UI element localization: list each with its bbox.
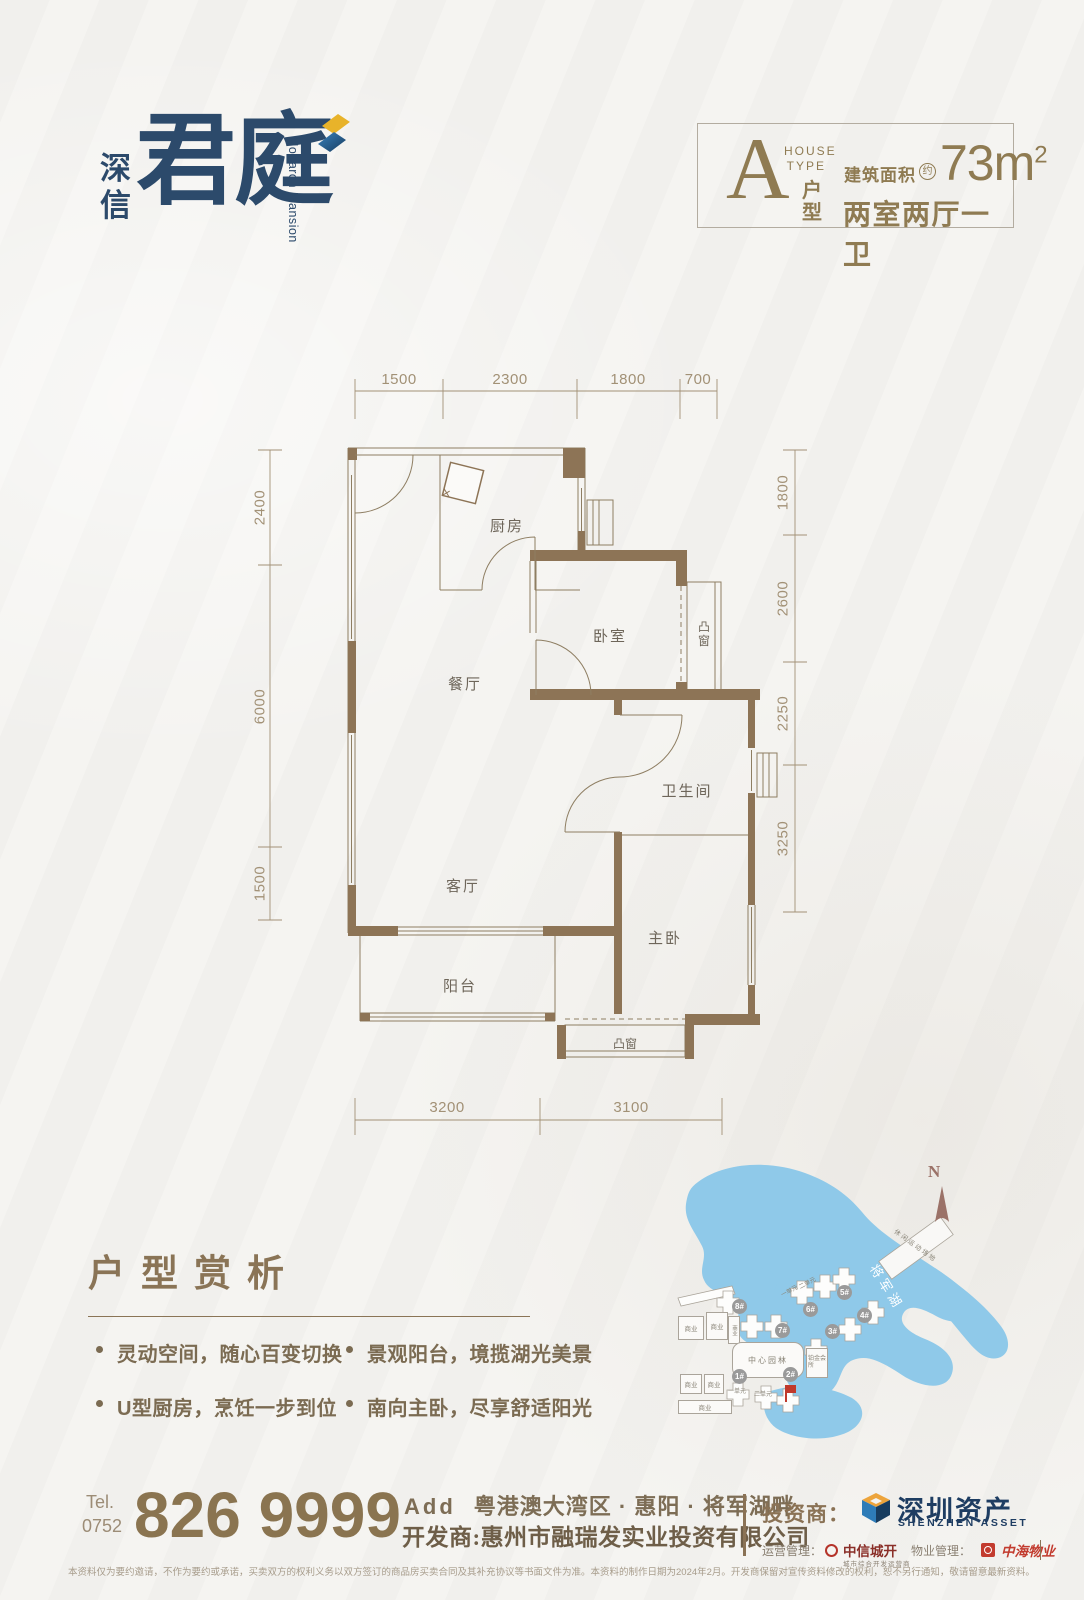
address-row: Add粤港澳大湾区 · 惠阳 · 将军湖畔	[404, 1489, 795, 1521]
room-label-bedroom: 卧室	[565, 625, 655, 646]
bullet-dot-icon	[96, 1400, 103, 1407]
house-type-cn: 户型	[802, 180, 826, 224]
logo-brand-name: 君庭	[136, 112, 332, 212]
bullet-item: 灵动空间，随心百变切换	[96, 1338, 346, 1367]
dim-top-2: 2300	[478, 371, 542, 388]
building-badge-1: 1#	[732, 1369, 747, 1384]
house-type-en-line2: TYPE	[784, 159, 826, 174]
bullet-dot-icon	[346, 1346, 353, 1353]
commercial-block: 商业	[680, 1374, 702, 1394]
dim-right-1: 1800	[775, 461, 792, 525]
room-label-dining: 餐厅	[420, 673, 510, 694]
kitchen-sink-icon	[442, 462, 483, 503]
bullet-dot-icon	[346, 1400, 353, 1407]
house-type-letter: A	[726, 126, 790, 214]
bay-window-dashed-lines	[565, 586, 685, 1019]
entry-door-arc	[355, 455, 413, 513]
bathroom-door-arc	[620, 715, 682, 777]
dim-right-2: 2600	[775, 567, 792, 631]
building-badge-2: 2#	[783, 1367, 798, 1382]
room-label-bay-window-bottom: 凸窗	[580, 1035, 670, 1052]
address-label: Add	[404, 1494, 456, 1519]
logo-diamond-icon	[312, 110, 354, 173]
tel-label: Tel.	[86, 1492, 114, 1513]
dim-right-3: 2250	[775, 682, 792, 746]
approx-circle: 约	[919, 163, 936, 180]
analysis-title: 户型赏析	[88, 1243, 300, 1297]
bullet-text: 灵动空间，随心百变切换	[117, 1338, 343, 1367]
site-map: N 将军湖 休闲运动场地 商业 商业 商业 商业 商业 商业 中心园林 铂金会所…	[620, 1140, 1050, 1450]
floor-plan-drawing	[235, 345, 825, 1135]
developer-row: 开发商:惠州市融瑞发实业投资有限公司	[402, 1518, 810, 1552]
investor-label: 投资商：	[762, 1498, 850, 1528]
house-type-box: A HOUSE TYPE 户型 建筑面积 约 73m2 两室两厅一卫	[697, 123, 1014, 228]
master-door-arc	[565, 777, 620, 832]
room-label-balcony: 阳台	[415, 975, 505, 996]
commercial-strip: 商业	[678, 1400, 732, 1414]
building-badge-5: 5#	[837, 1285, 852, 1300]
op-name: 中信城开	[843, 1540, 897, 1560]
rooms-description: 两室两厅一卫	[843, 193, 1013, 273]
bullet-item: U型厨房，烹饪一步到位	[96, 1392, 346, 1421]
disclaimer-text: 本资料仅为要约邀请，不作为要约或承诺，买卖双方的权利义务以双方签订的商品房买卖合…	[68, 1564, 1068, 1578]
area-number: 73m	[940, 135, 1034, 191]
thick-walls	[348, 448, 760, 1059]
op-logo-icon	[825, 1544, 838, 1557]
dim-top-1: 1500	[367, 371, 431, 388]
dim-left-2: 6000	[252, 675, 269, 739]
house-type-en-line1: HOUSE	[784, 144, 826, 159]
room-label-master: 主卧	[620, 927, 710, 948]
room-label-bay-window-right: 凸窗	[697, 620, 711, 649]
commercial-block: 商业	[706, 1312, 728, 1340]
building-badge-4: 4#	[857, 1308, 872, 1323]
dim-bottom-2: 3100	[599, 1099, 663, 1116]
bedroom-door-arc	[536, 640, 591, 695]
investor-cube-icon	[856, 1489, 896, 1534]
clubhouse: 铂金会所	[806, 1348, 828, 1378]
building-badge-6: 6#	[803, 1302, 818, 1317]
area-value: 73m2	[940, 134, 1047, 192]
bullet-text: U型厨房，烹饪一步到位	[117, 1392, 337, 1421]
commercial-block: 商业	[728, 1316, 740, 1344]
bullet-dot-icon	[96, 1346, 103, 1353]
dim-top-3: 1800	[596, 371, 660, 388]
floorplan-poster: 深信 君庭 Monarch Mansion A HOUSE TYPE 户型 建筑…	[0, 0, 1084, 1600]
area-superscript: 2	[1034, 141, 1046, 168]
compass-arrow-icon	[935, 1186, 949, 1222]
commercial-block: 商业	[678, 1316, 704, 1340]
bullet-text: 景观阳台，境揽湖光美景	[367, 1338, 593, 1367]
address-text: 粤港澳大湾区 · 惠阳 · 将军湖畔	[474, 1494, 795, 1519]
logo-cn-vertical: 深信	[100, 150, 136, 224]
analysis-underline	[88, 1316, 530, 1317]
room-label-bathroom: 卫生间	[642, 780, 732, 801]
dim-left-3: 1500	[252, 852, 269, 916]
unit-label: 一单元	[728, 1386, 746, 1395]
kitchen-door-arc	[482, 537, 535, 590]
logo-icon-yellow-facet	[322, 114, 350, 134]
analysis-bullets: 灵动空间，随心百变切换 景观阳台，境揽湖光美景 U型厨房，烹饪一步到位 南向主卧…	[96, 1338, 676, 1421]
bullet-text: 南向主卧，尽享舒适阳光	[367, 1392, 593, 1421]
area-label: 建筑面积	[844, 161, 916, 186]
op-label: 运营管理：	[762, 1542, 822, 1559]
investor-name-en: SHENZHEN ASSET	[898, 1517, 1028, 1529]
building-badge-8: 8#	[732, 1299, 747, 1314]
pm-name: 中海物业	[1001, 1540, 1055, 1560]
disclaimer-edge-mark	[1040, 1540, 1041, 1560]
room-label-kitchen: 厨房	[462, 515, 552, 536]
pm-logo-icon	[981, 1543, 995, 1557]
room-label-living: 客厅	[418, 875, 508, 896]
house-type-en: HOUSE TYPE	[784, 144, 826, 174]
investor-divider	[743, 1494, 746, 1556]
unit-label: 二单元	[754, 1389, 772, 1398]
logo-english-name: Monarch Mansion	[285, 136, 299, 236]
floor-plan: 1500 2300 1800 700 2400 6000 1500 1800 2…	[235, 345, 825, 1135]
dim-left-1: 2400	[252, 476, 269, 540]
location-flag-icon	[785, 1385, 796, 1393]
tel-number: 826 9999	[134, 1478, 401, 1552]
commercial-block: 商业	[704, 1374, 724, 1394]
pm-label: 物业管理：	[911, 1542, 971, 1559]
dim-bottom-1: 3200	[415, 1099, 479, 1116]
dim-top-4: 700	[666, 371, 730, 388]
thin-walls	[348, 448, 777, 1057]
building-badge-7: 7#	[775, 1323, 790, 1338]
building-badge-3: 3#	[825, 1324, 840, 1339]
tel-area-code: 0752	[82, 1516, 122, 1537]
management-row: 运营管理： 中信城开 物业管理： 中海物业	[762, 1540, 1055, 1560]
dim-right-4: 3250	[775, 807, 792, 871]
compass-north-label: N	[928, 1162, 940, 1182]
logo-icon-blue-facet	[318, 132, 346, 152]
